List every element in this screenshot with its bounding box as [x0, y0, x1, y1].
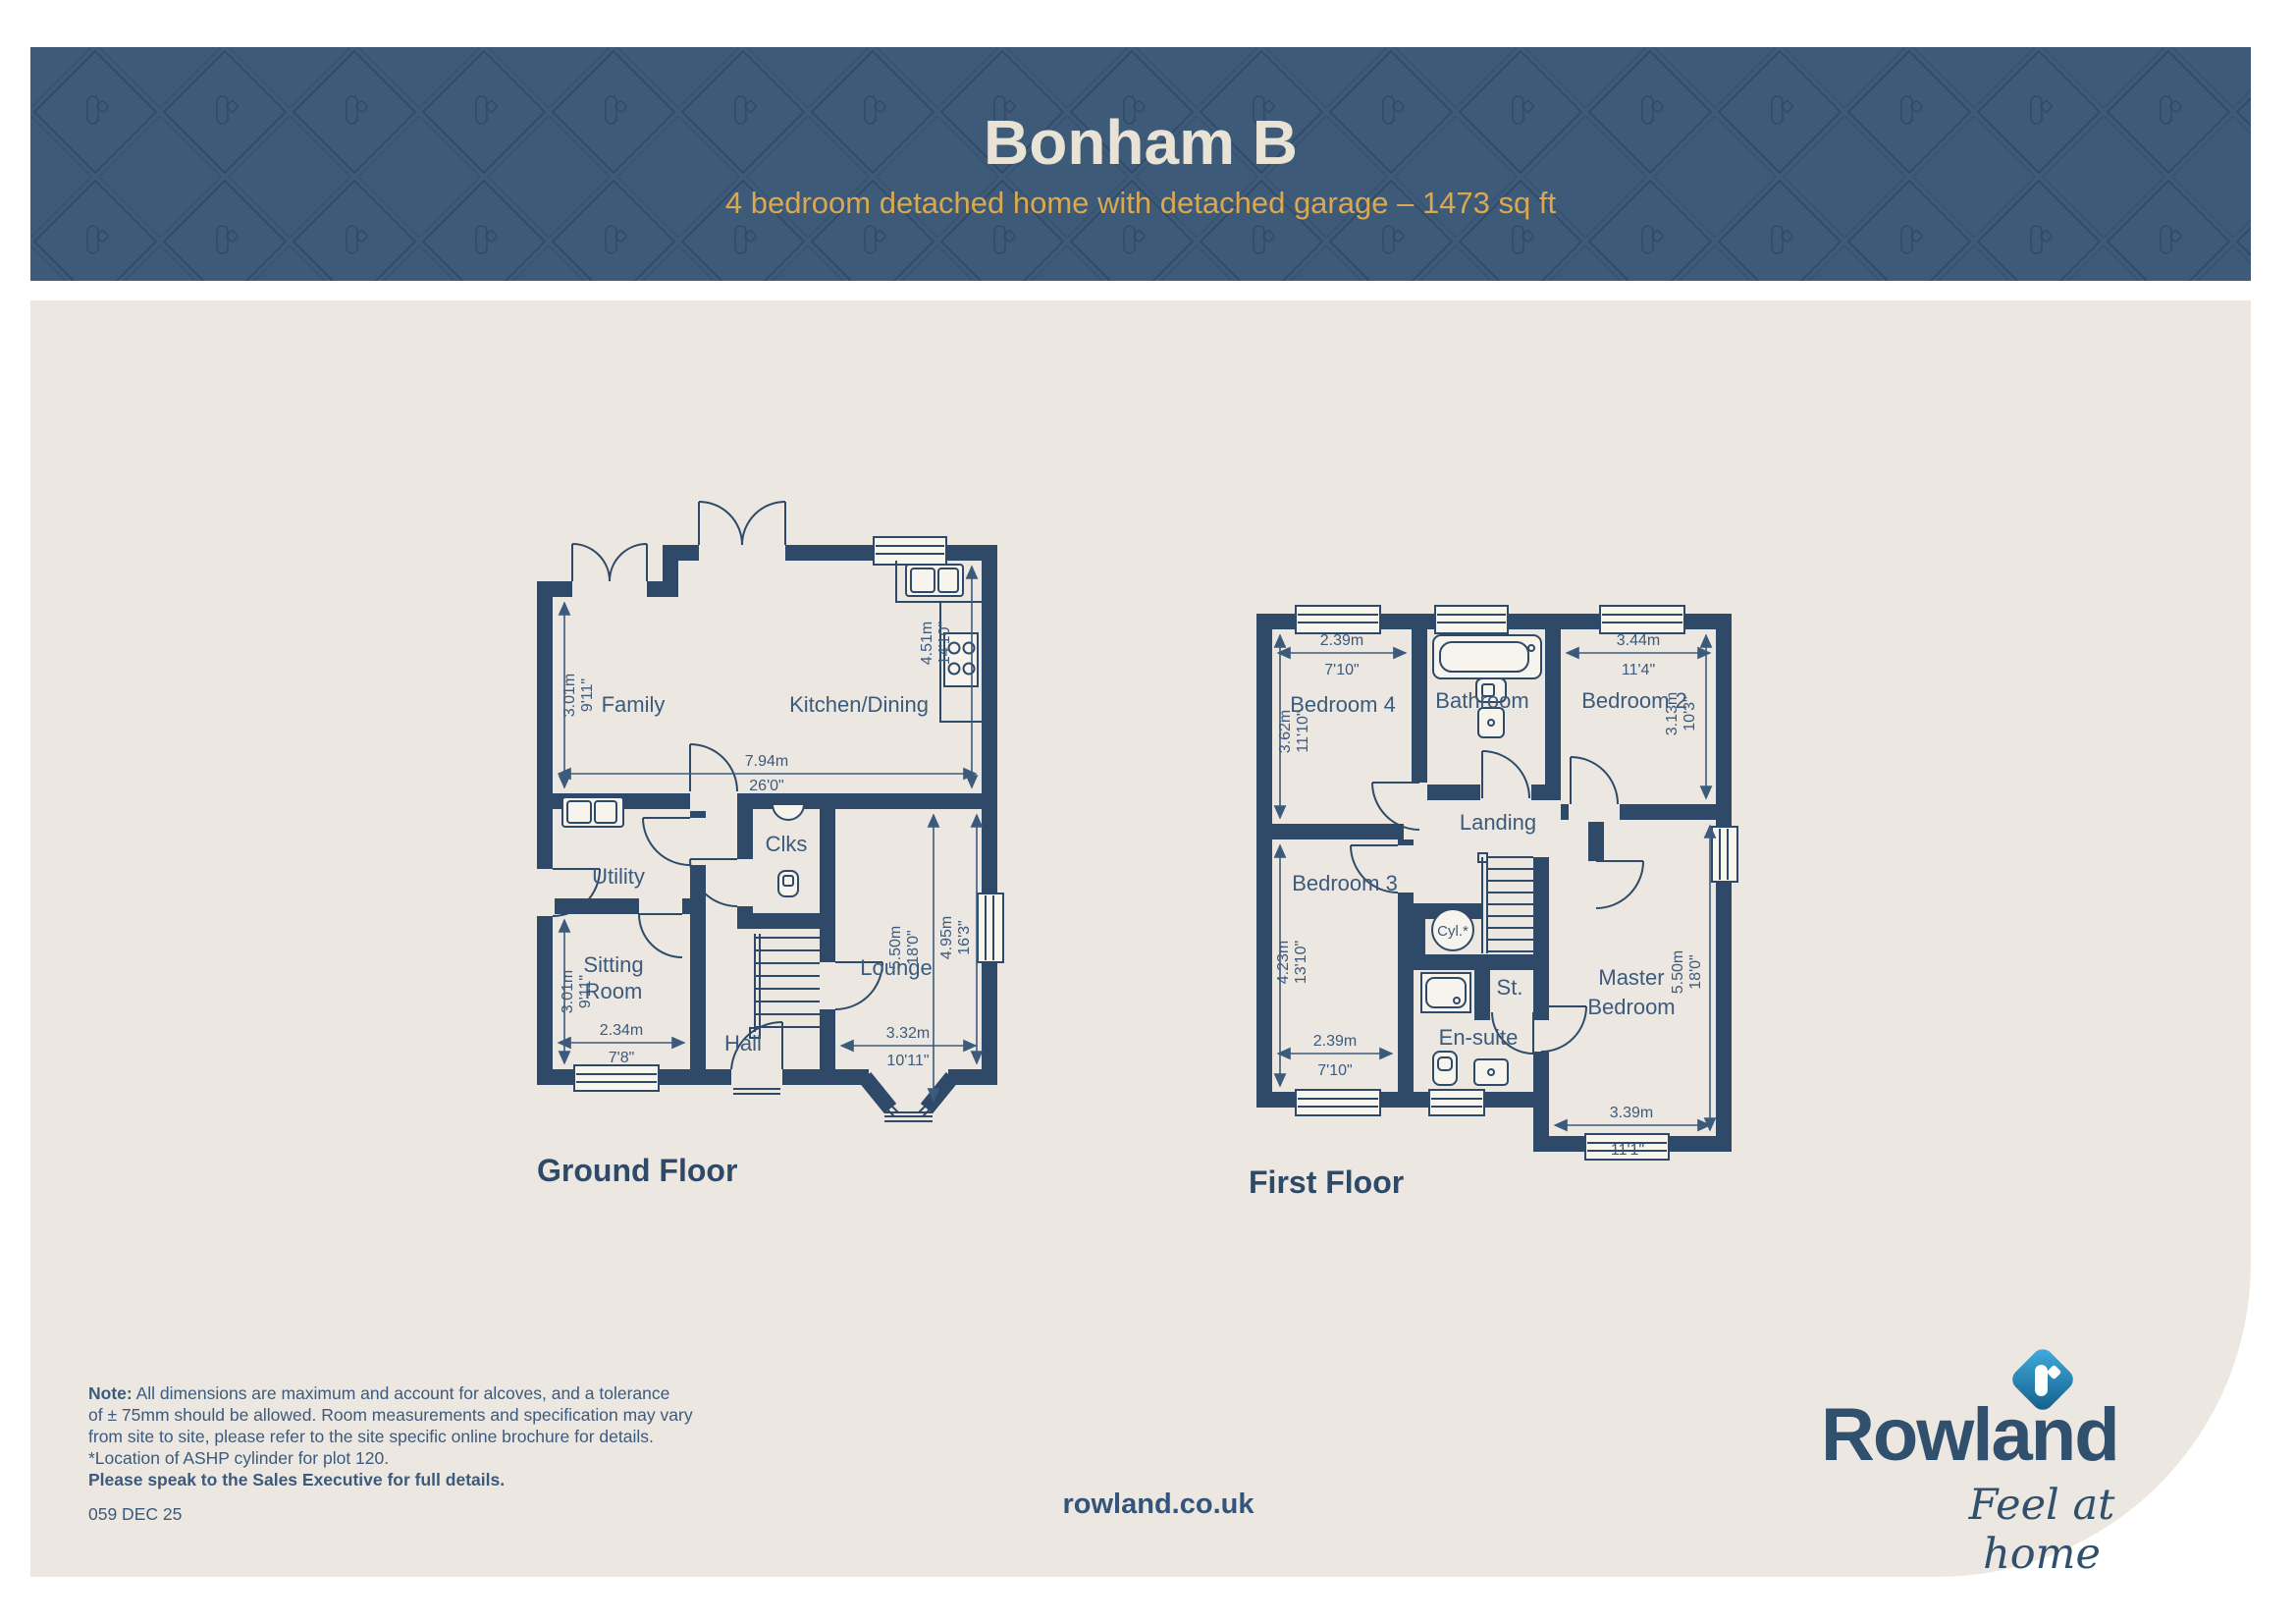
gf-sitting-window [574, 1065, 659, 1091]
gf-utility-sink [562, 797, 623, 827]
gf-room-label-sitting-2: Room [585, 979, 643, 1003]
ff-bed4-window [1296, 606, 1380, 633]
ff-cyl-label: Cyl.* [1437, 923, 1468, 940]
gf-dim-lounge-h-ft: 10'11" [886, 1053, 929, 1069]
rowland-tagline: Feel at home [1914, 1481, 2169, 1579]
ff-bathroom-window [1435, 606, 1508, 633]
gf-front-door-threshold [733, 1089, 780, 1094]
footnote-note-label: Note: [88, 1383, 133, 1403]
ff-dim-bed3-h-ft: 7'10" [1317, 1062, 1352, 1079]
ff-dim-master-v-ft: 18'0" [1687, 954, 1704, 989]
gf-clks-wc [778, 871, 798, 896]
gf-lounge-side-window [978, 893, 1003, 962]
ff-stairs [1478, 853, 1533, 953]
ff-dim-bed4-h-ft: 7'10" [1324, 662, 1359, 678]
gf-dim-lounge-v2-m: 4.95m [938, 916, 955, 959]
gf-dim-kitchen-v-ft: 14'10" [936, 622, 953, 665]
gf-kitchen-hall-door [690, 744, 737, 791]
footnote-line-4: *Location of ASHP cylinder for plot 120. [88, 1447, 834, 1469]
gf-floor-label: Ground Floor [537, 1153, 737, 1188]
gf-dim-lounge-v2-ft: 16'3" [956, 920, 973, 954]
ff-ensuite-wc [1433, 1052, 1457, 1085]
page-subtitle: 4 bedroom detached home with detached ga… [725, 188, 1556, 218]
ff-bed2-door [1571, 757, 1618, 804]
ff-master-door [1596, 861, 1643, 908]
ff-room-label-bed3: Bedroom 3 [1292, 871, 1398, 895]
gf-dim-family-v-m: 3.01m [561, 674, 578, 717]
gf-room-label-hall: Hall [724, 1031, 762, 1056]
ff-room-label-landing: Landing [1460, 810, 1536, 835]
ff-room-label-bed2: Bedroom 2 [1581, 688, 1687, 713]
gf-dim-kitchen-v-m: 4.51m [919, 622, 935, 665]
gf-dim-overall-m: 7.94m [745, 753, 788, 770]
footnote-line-5: Please speak to the Sales Executive for … [88, 1469, 834, 1490]
ff-dim-master-h-m: 3.39m [1610, 1105, 1653, 1121]
ff-dim-bed3-v-m: 4.23m [1275, 941, 1292, 984]
ff-room-label-bed4: Bedroom 4 [1290, 692, 1396, 717]
rowland-wordmark: Rowland [1821, 1392, 2115, 1478]
gf-room-label-sitting-1: Sitting [583, 952, 643, 977]
ff-ensuite-basin [1474, 1059, 1508, 1085]
ff-room-label-st: St. [1497, 975, 1523, 1000]
ff-dim-master-v-m: 5.50m [1670, 950, 1686, 994]
ff-dim-bed3-h-m: 2.39m [1313, 1033, 1357, 1050]
gf-kitchen-french-doors [699, 502, 785, 545]
reference-code: 059 DEC 25 [88, 1504, 182, 1525]
ff-room-label-master-2: Bedroom [1587, 995, 1675, 1019]
ff-room-label-master-1: Master [1598, 965, 1664, 990]
ff-room-label-bathroom: Bathroom [1435, 688, 1528, 713]
gf-utility-hall-door [643, 818, 690, 865]
gf-room-label-lounge: Lounge [860, 955, 932, 980]
gf-room-label-utility: Utility [592, 864, 645, 889]
ff-dim-master-h-ft: 11'1" [1611, 1142, 1644, 1159]
ff-dim-bed2-h-ft: 11'4" [1622, 662, 1655, 678]
website-url: rowland.co.uk [952, 1489, 1364, 1521]
ff-cylinder: Cyl.* [1432, 909, 1473, 950]
header-banner: Bonham B 4 bedroom detached home with de… [30, 47, 2251, 281]
ff-floor-label: First Floor [1249, 1164, 1404, 1200]
footnote-line-2: of ± 75mm should be allowed. Room measur… [88, 1404, 834, 1426]
rowland-logo: Rowland Feel at home [1821, 1316, 2160, 1561]
gf-dim-lounge-h-m: 3.32m [886, 1025, 930, 1042]
ff-dim-bed3-v-ft: 13'10" [1293, 941, 1309, 984]
gf-dim-sitting-v-m: 3.01m [560, 970, 576, 1013]
footnote-line-3: from site to site, please refer to the s… [88, 1426, 834, 1447]
ff-bed2-window [1600, 606, 1684, 633]
gf-dim-sitting-h-ft: 7'8" [609, 1050, 635, 1066]
gf-kitchen-window [874, 537, 946, 565]
gf-dim-overall-ft: 26'0" [749, 778, 783, 794]
gf-sitting-door [639, 914, 682, 957]
footnote: Note: All dimensions are maximum and acc… [88, 1382, 834, 1490]
gf-room-label-clks: Clks [766, 832, 808, 856]
ground-floor-plan: 3.01m 9'11" 7.94m 26'0" 4.51m 14'10" 3.0… [535, 476, 1045, 1222]
ff-bath [1433, 635, 1541, 678]
gf-room-label-family: Family [602, 692, 666, 717]
gf-kitchen-sink [906, 565, 963, 596]
ff-ensuite-window [1429, 1090, 1484, 1115]
footnote-line-1: Note: All dimensions are maximum and acc… [88, 1382, 834, 1404]
gf-stairs [750, 934, 820, 1038]
ff-master-side-window [1712, 827, 1737, 882]
ff-bed4-door [1372, 783, 1419, 830]
ff-shower [1421, 973, 1470, 1012]
first-floor-plan: Cyl.* 2.39m 7'10" 3.62m 11'10" 3.44m 11'… [1247, 604, 1757, 1213]
gf-room-label-kitchen: Kitchen/Dining [789, 692, 929, 717]
ff-dim-bed4-h-m: 2.39m [1320, 632, 1363, 649]
gf-family-french-doors [572, 544, 647, 581]
gf-dim-sitting-h-m: 2.34m [600, 1022, 643, 1039]
ff-room-label-ensuite: En-suite [1439, 1025, 1519, 1050]
ff-bed3-window [1296, 1090, 1380, 1115]
gf-dim-family-v-ft: 9'11" [579, 678, 596, 712]
ff-dim-bed2-h-m: 3.44m [1617, 632, 1660, 649]
page-title: Bonham B [984, 111, 1298, 174]
